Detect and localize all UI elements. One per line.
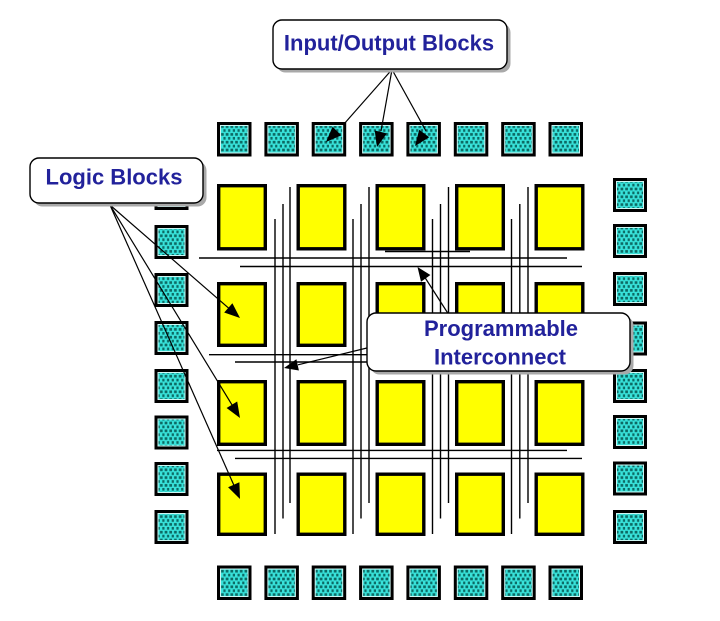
svg-text:Input/Output Blocks: Input/Output Blocks <box>284 31 494 56</box>
svg-text:Logic Blocks: Logic Blocks <box>46 165 183 190</box>
svg-text:Programmable: Programmable <box>424 316 578 341</box>
svg-text:Interconnect: Interconnect <box>434 345 567 370</box>
